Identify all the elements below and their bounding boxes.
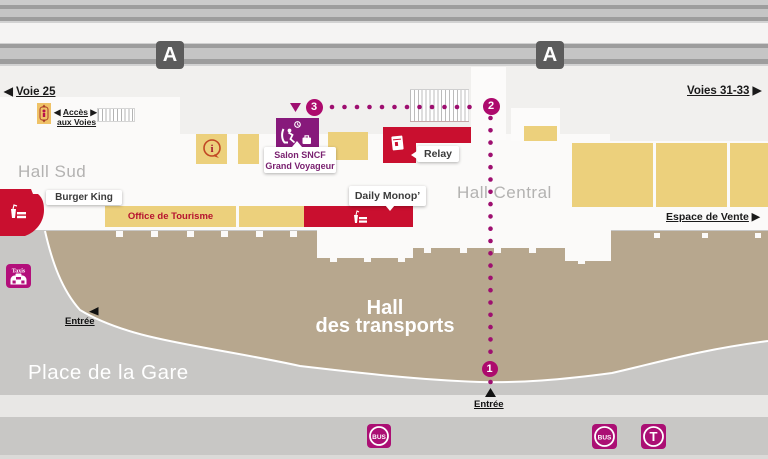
svg-text:BUS: BUS <box>372 434 386 441</box>
svg-text:BUS: BUS <box>598 435 612 442</box>
svg-text:T: T <box>650 429 658 444</box>
